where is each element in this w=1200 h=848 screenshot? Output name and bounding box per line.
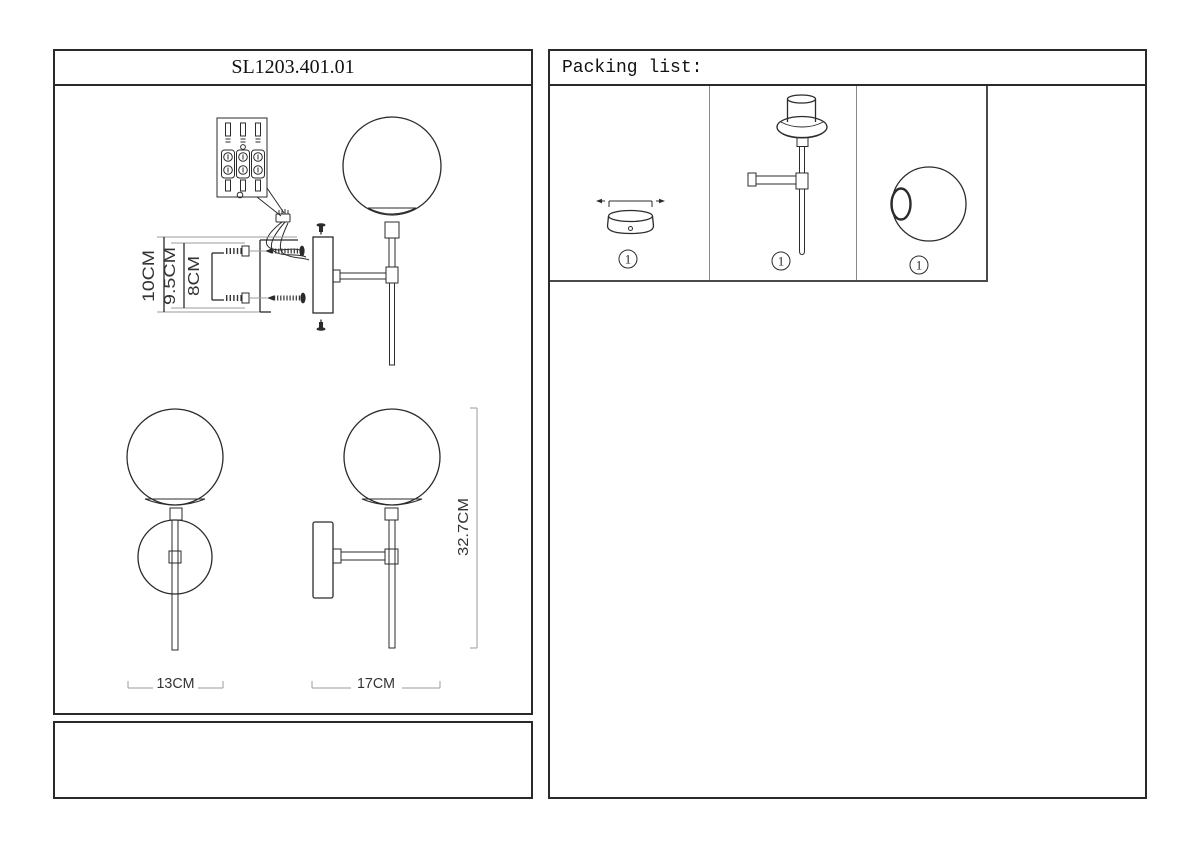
dim-label-9-5cm: 9.5CM [162, 247, 179, 305]
quantity-value: 1 [915, 259, 921, 273]
height-dimension: 32.7CM [455, 408, 477, 648]
technical-drawing-area: 10CM 9.5CM 8CM [55, 86, 531, 713]
packing-list-table: 1 [550, 86, 988, 282]
quantity-badge: 1 [772, 252, 790, 270]
model-number: SL1203.401.01 [231, 56, 354, 79]
mounting-template-callout [217, 118, 284, 216]
canopy-side-view-icon: 1 [550, 86, 708, 278]
left-panel-footer-strip [53, 721, 533, 799]
packing-list-panel: Packing list: [548, 49, 1147, 799]
side-width-dimension: 17CM [312, 675, 440, 692]
fixing-screw-above [317, 223, 326, 234]
dim-label-10cm: 10CM [139, 250, 158, 302]
quantity-badge: 1 [619, 250, 637, 268]
side-view [313, 409, 440, 648]
dim-label-8cm: 8CM [186, 256, 203, 296]
dim-label-32-7cm: 32.7CM [455, 498, 472, 556]
glass-globe-icon: 1 [857, 86, 986, 278]
dim-label-17cm: 17CM [357, 675, 395, 692]
canopy-drawing [608, 211, 654, 234]
packing-item-globe: 1 [856, 86, 986, 280]
wall-anchor-and-screw-bottom [226, 293, 306, 304]
packing-list-title: Packing list: [562, 58, 702, 78]
model-title-bar: SL1203.401.01 [55, 51, 531, 86]
install-dimensions: 10CM 9.5CM 8CM [139, 237, 297, 312]
globe-drawing [891, 167, 966, 241]
packing-list-title-bar: Packing list: [550, 51, 1145, 86]
lamp-body-drawing [748, 95, 827, 255]
lamp-body-icon: 1 [710, 86, 855, 278]
fixing-screw-below [317, 320, 326, 331]
quantity-value: 1 [778, 255, 784, 269]
instruction-sheet: SL1203.401.01 [0, 0, 1200, 848]
packing-item-lamp-body: 1 [709, 86, 855, 280]
technical-drawing: 10CM 9.5CM 8CM [55, 86, 531, 713]
quantity-value: 1 [625, 253, 631, 267]
quantity-badge: 1 [910, 256, 928, 274]
install-backplate [313, 237, 386, 313]
front-width-dimension: 13CM [128, 675, 223, 692]
left-panel: SL1203.401.01 [53, 49, 533, 715]
install-lamp-side-view [343, 117, 441, 365]
width-arrows [596, 199, 665, 207]
front-view [127, 409, 223, 650]
dim-label-13cm: 13CM [157, 675, 195, 692]
packing-item-canopy: 1 [550, 86, 709, 280]
